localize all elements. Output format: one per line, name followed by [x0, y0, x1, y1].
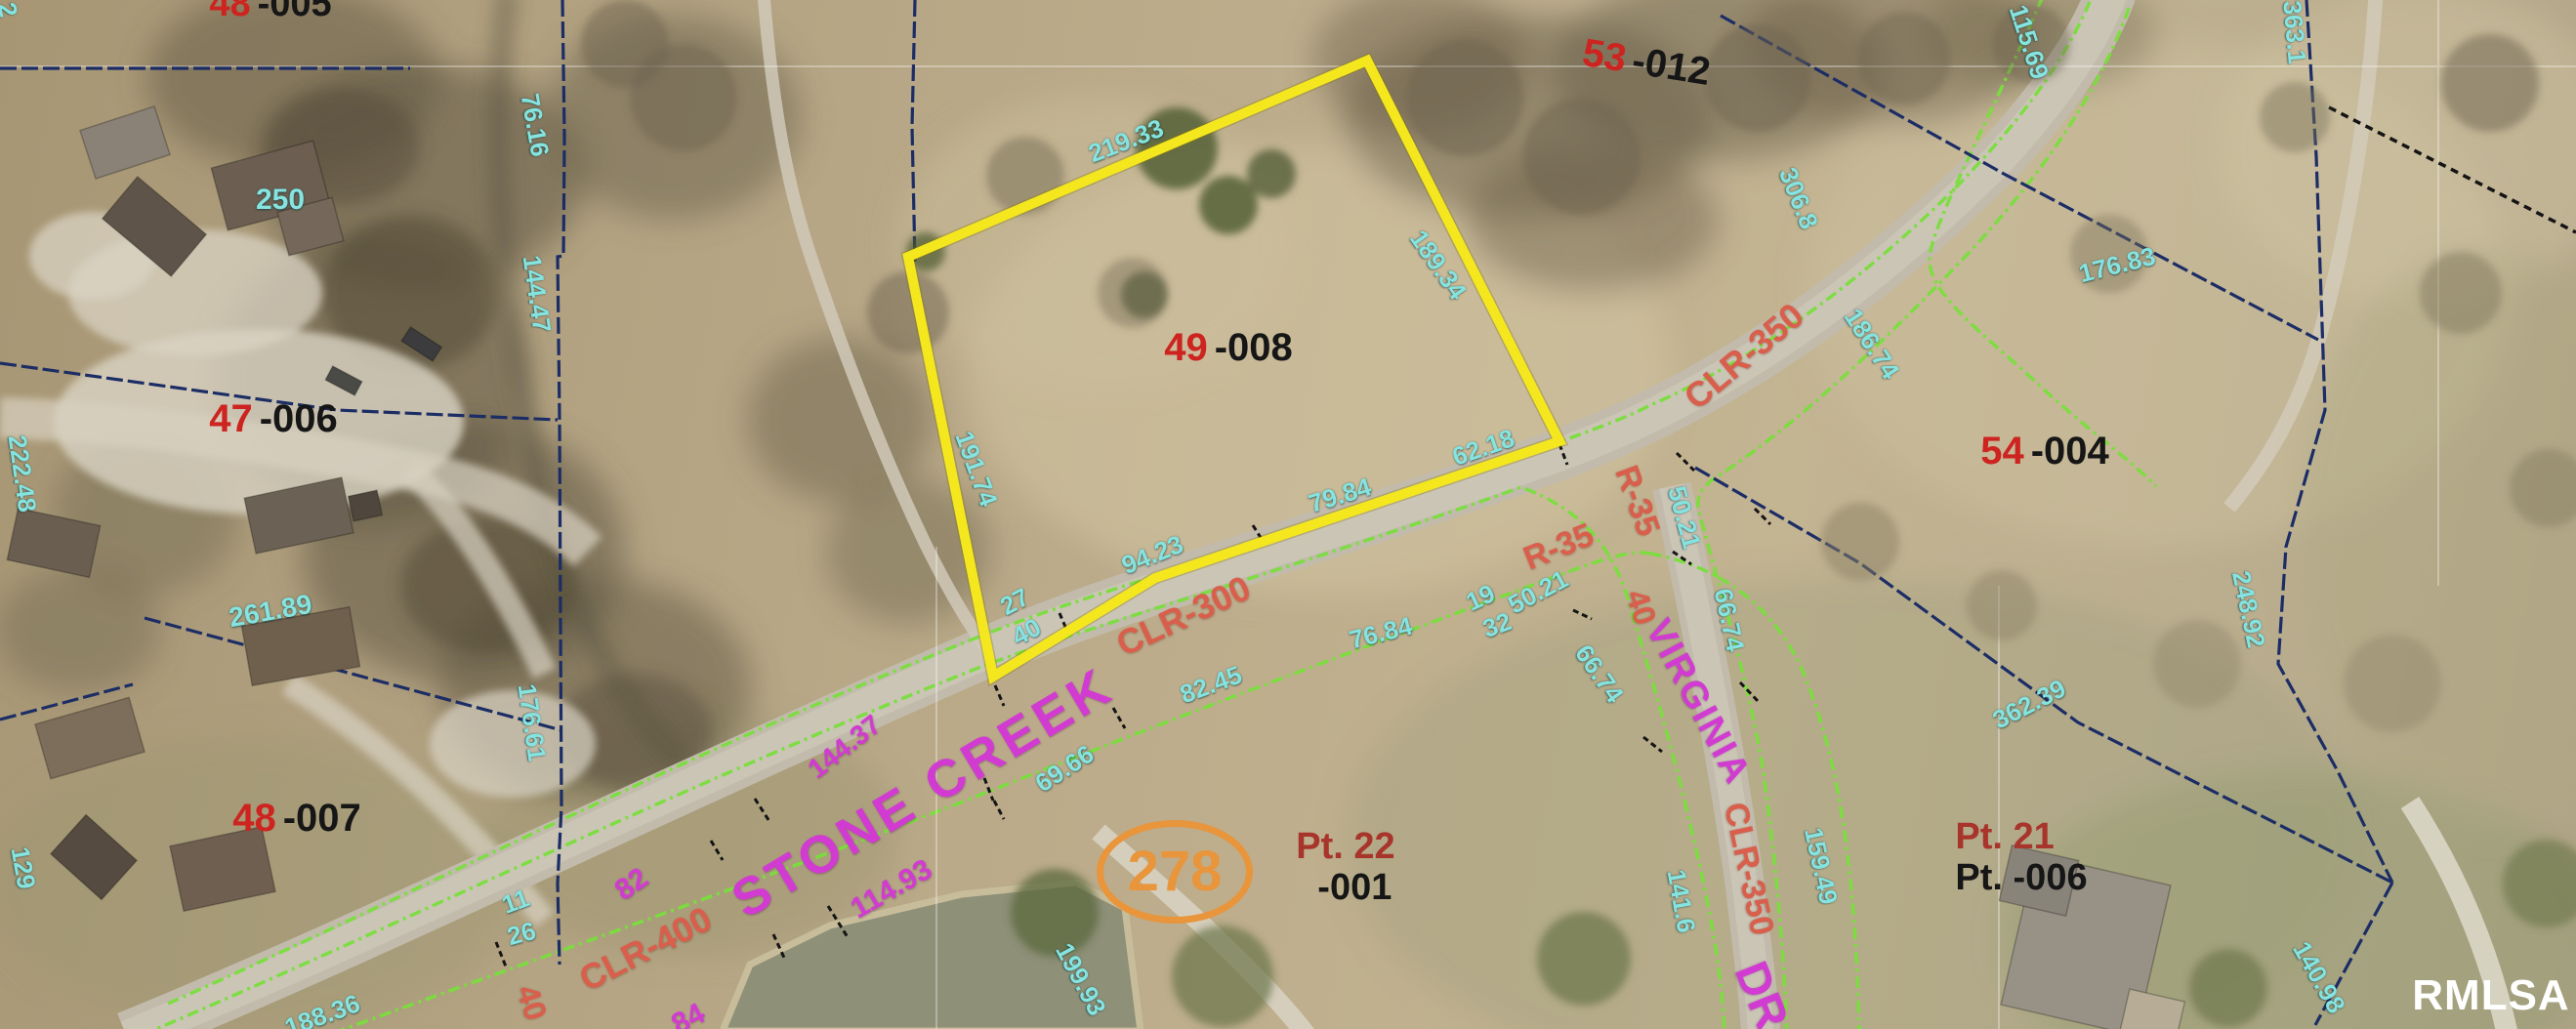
street-name-label: 114.93 [846, 854, 936, 924]
street-name-label: DR [1726, 956, 1795, 1029]
parcel-id-label: 49-008 [1164, 328, 1293, 367]
road-engineering-label: CLR-400 [574, 901, 717, 997]
map-labels-layer: 225076.16144.47176.61222.48261.89129188.… [0, 0, 2576, 1029]
parcel-number: 47 [209, 399, 253, 438]
dimension-label: 248.92 [2228, 568, 2269, 649]
dimension-label: 176.83 [2076, 243, 2157, 286]
dimension-label: 26 [505, 918, 539, 950]
watermark: RMLSA [2412, 971, 2569, 1020]
parcel-suffix: -008 [1215, 328, 1293, 367]
dimension-label: 66.74 [1571, 640, 1629, 707]
dimension-label: 140.98 [2289, 937, 2349, 1017]
parcel-id-label: 54-004 [1980, 432, 2109, 471]
dimension-label: 189.34 [1406, 226, 1472, 304]
dimension-label: 188.36 [281, 990, 363, 1029]
dimension-label: 50.21 [1664, 483, 1705, 552]
dimension-label: 363.1 [2279, 0, 2310, 65]
plat-map-canvas: 225076.16144.47176.61222.48261.89129188.… [0, 0, 2576, 1029]
dimension-label: 159.49 [1801, 825, 1842, 906]
street-name-label: 144.37 [804, 711, 887, 784]
parcel-id-label: Pt. 22-001 [1296, 828, 1394, 906]
dimension-label: 199.93 [1052, 939, 1110, 1019]
parcel-number: 49 [1164, 328, 1208, 367]
dimension-label: 222.48 [5, 433, 41, 514]
dimension-label: 362.39 [1989, 675, 2070, 732]
dimension-label: 306.8 [1775, 164, 1822, 232]
dimension-label: 76.84 [1347, 613, 1414, 653]
road-engineering-label: CLR-350 [1719, 800, 1779, 938]
street-name-label: 84 [667, 999, 710, 1029]
parcel-suffix: Pt. -006 [1955, 859, 2087, 896]
dimension-label: 11 [499, 885, 533, 918]
parcel-id-label: 48-007 [232, 799, 361, 838]
parcel-suffix: -004 [2031, 432, 2109, 471]
dimension-label: 79.84 [1306, 473, 1374, 516]
lot-area-badge: 278 [1097, 820, 1253, 924]
dimension-label: 2 [0, 0, 21, 20]
parcel-suffix: -012 [1630, 41, 1713, 92]
road-engineering-label: CLR-300 [1111, 570, 1256, 662]
parcel-number: 48 [209, 0, 250, 22]
dimension-label: 62.18 [1449, 425, 1517, 470]
dimension-label: 191.74 [951, 428, 1002, 510]
dimension-label: 32 [1479, 608, 1515, 641]
dimension-label: 219.33 [1085, 115, 1167, 167]
parcel-suffix: -001 [1317, 869, 1392, 906]
parcel-number: 48 [232, 799, 276, 838]
dimension-label: 94.23 [1118, 531, 1186, 578]
dimension-label: 250 [256, 185, 305, 215]
parcel-number: Pt. 21 [1955, 818, 2054, 855]
parcel-id-label: 53-012 [1580, 33, 1713, 92]
parcel-suffix: -005 [258, 0, 332, 22]
dimension-label: 76.16 [518, 92, 554, 159]
street-name-label: 82 [610, 863, 654, 906]
parcel-suffix: -006 [260, 399, 338, 438]
dimension-label: 261.89 [227, 591, 313, 632]
parcel-suffix: -007 [283, 799, 361, 838]
dimension-label: 141.6 [1664, 868, 1700, 935]
parcel-id-label: Pt. 21Pt. -006 [1955, 818, 2087, 896]
dimension-label: 82.45 [1177, 662, 1245, 708]
dimension-label: 144.47 [519, 254, 556, 334]
road-engineering-label: 40 [512, 981, 552, 1024]
dimension-label: 66.74 [1711, 586, 1749, 653]
dimension-label: 176.61 [515, 682, 551, 762]
dimension-label: 40 [1008, 614, 1045, 650]
parcel-number: 54 [1980, 432, 2024, 471]
parcel-number: Pt. 22 [1296, 828, 1394, 865]
road-engineering-label: R-35 [1609, 462, 1665, 541]
parcel-id-label: 47-006 [209, 399, 338, 438]
parcel-id-label: 48-005 [209, 0, 331, 22]
dimension-label: 186.74 [1840, 305, 1903, 384]
road-engineering-label: CLR-350 [1678, 297, 1809, 415]
dimension-label: 129 [7, 844, 39, 890]
dimension-label: 115.69 [2006, 2, 2054, 82]
parcel-number: 53 [1580, 33, 1629, 78]
